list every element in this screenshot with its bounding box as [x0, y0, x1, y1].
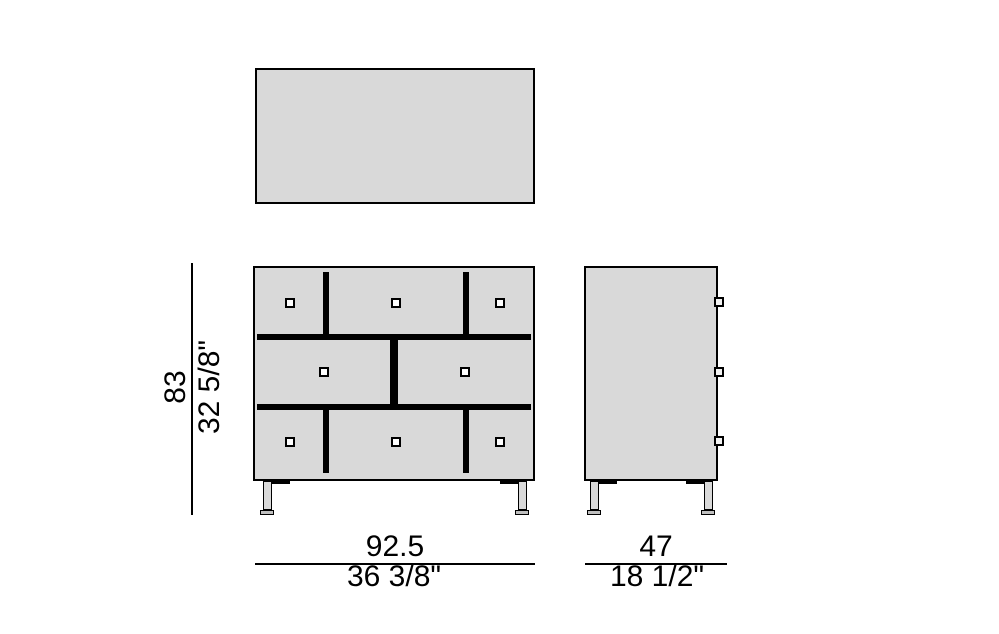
drawer-knob: [460, 367, 470, 377]
front-right-leg-foot: [515, 510, 529, 515]
drawer-grid: [257, 272, 531, 473]
drawer-top-right: [469, 272, 531, 334]
side-left-leg-plate: [599, 481, 617, 484]
front-left-leg-plate: [272, 481, 290, 484]
drawer-knob: [495, 437, 505, 447]
front-left-leg-foot: [260, 510, 274, 515]
side-drawer-knob: [714, 297, 724, 307]
drawer-knob: [319, 367, 329, 377]
depth-label-inches: 18 1/2": [610, 562, 704, 592]
drawer-middle-left: [257, 340, 390, 404]
side-drawer-knob: [714, 367, 724, 377]
top-view: [255, 68, 535, 204]
drawer-bottom-right: [469, 410, 531, 473]
front-left-leg: [263, 481, 272, 510]
depth-label-cm: 47: [639, 532, 672, 562]
side-view: [584, 266, 718, 481]
side-right-leg: [704, 481, 713, 510]
side-drawer-knob: [714, 436, 724, 446]
drawer-knob: [285, 437, 295, 447]
front-right-leg: [518, 481, 527, 510]
side-left-leg: [590, 481, 599, 510]
drawer-bottom-center: [329, 410, 463, 473]
drawer-knob: [391, 437, 401, 447]
height-label-cm: 83: [161, 370, 191, 403]
furniture-dimension-drawing: 83 32 5/8" 92.5 36 3/8" 47 18 1/2": [0, 0, 999, 634]
drawer-top-left: [257, 272, 323, 334]
drawer-top-center: [329, 272, 463, 334]
drawer-knob: [495, 298, 505, 308]
side-left-leg-foot: [587, 510, 601, 515]
drawer-bottom-left: [257, 410, 323, 473]
side-right-leg-plate: [686, 481, 704, 484]
front-right-leg-plate: [500, 481, 518, 484]
width-label-cm: 92.5: [366, 532, 424, 562]
height-label-inches: 32 5/8": [195, 340, 225, 434]
drawer-knob: [391, 298, 401, 308]
drawer-knob: [285, 298, 295, 308]
drawer-middle-right: [398, 340, 531, 404]
width-label-inches: 36 3/8": [347, 562, 441, 592]
side-right-leg-foot: [701, 510, 715, 515]
